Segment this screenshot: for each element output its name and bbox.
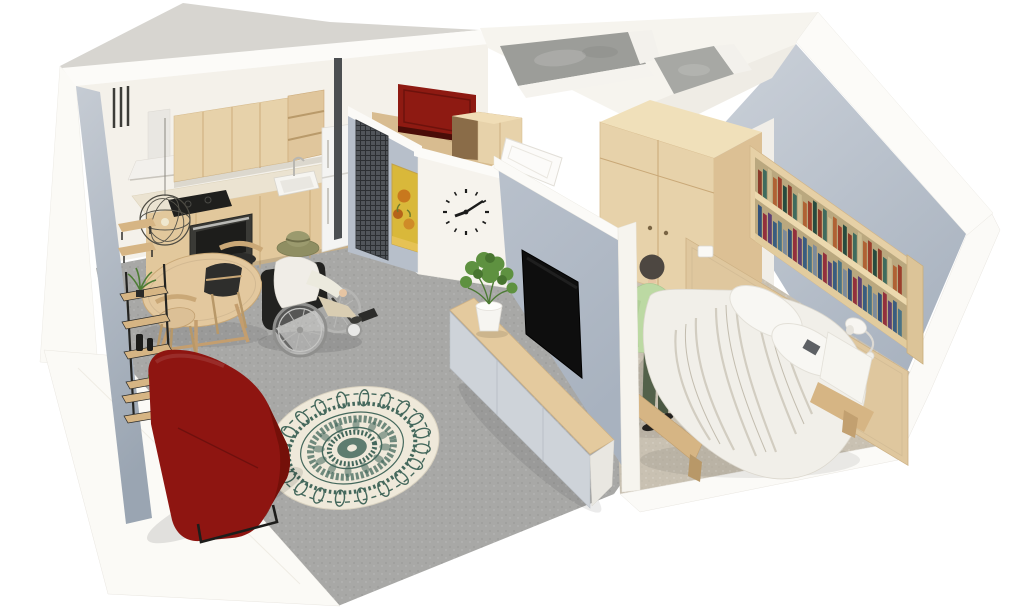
black-vase bbox=[136, 334, 143, 351]
bookshelf-end-panel bbox=[907, 255, 923, 364]
floorplan-stage: 3D isometric cutaway rendering of a smal… bbox=[0, 0, 1024, 615]
sun-hat-crown bbox=[286, 231, 310, 247]
wall-corner-strip bbox=[334, 58, 342, 240]
wall-lamp-left bbox=[698, 246, 713, 257]
floorplan-rendering bbox=[0, 0, 1024, 615]
open-shelves bbox=[288, 90, 324, 162]
doorway-jamb bbox=[618, 222, 640, 492]
wheelchair-caster bbox=[347, 323, 361, 337]
sunflower-painting bbox=[392, 164, 418, 252]
mesh-screen bbox=[356, 120, 388, 260]
person-head bbox=[640, 255, 665, 280]
black-vase bbox=[147, 338, 153, 351]
seated-person-hand bbox=[339, 289, 347, 297]
